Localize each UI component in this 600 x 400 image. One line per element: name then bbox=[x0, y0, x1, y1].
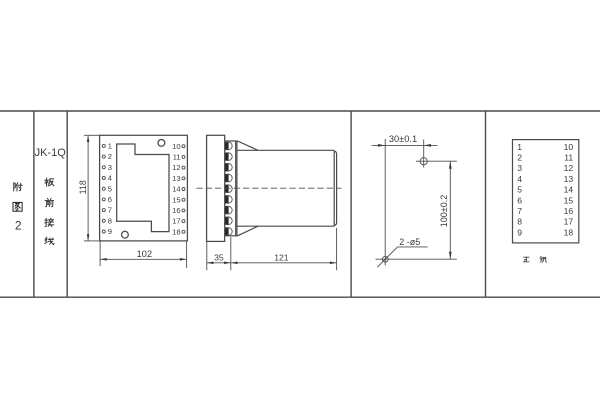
svg-text:1: 1 bbox=[108, 142, 112, 151]
svg-text:11: 11 bbox=[564, 153, 573, 163]
svg-text:1: 1 bbox=[517, 142, 522, 152]
svg-text:9: 9 bbox=[517, 227, 522, 237]
svg-text:7: 7 bbox=[517, 206, 522, 216]
svg-text:5: 5 bbox=[517, 185, 522, 195]
svg-text:6: 6 bbox=[517, 195, 522, 205]
svg-text:4: 4 bbox=[517, 174, 522, 184]
svg-text:10: 10 bbox=[172, 142, 180, 151]
svg-text:35: 35 bbox=[214, 252, 224, 262]
svg-text:17: 17 bbox=[564, 217, 574, 227]
svg-text:11: 11 bbox=[173, 153, 181, 162]
svg-text:13: 13 bbox=[564, 174, 574, 184]
svg-text:15: 15 bbox=[172, 195, 180, 204]
svg-text:100±0.2: 100±0.2 bbox=[439, 195, 449, 227]
svg-text:7: 7 bbox=[108, 206, 112, 215]
svg-text:18: 18 bbox=[564, 227, 574, 237]
svg-text:16: 16 bbox=[172, 206, 180, 215]
svg-text:12: 12 bbox=[564, 163, 574, 173]
svg-text:4: 4 bbox=[108, 174, 112, 183]
svg-text:30±0.1: 30±0.1 bbox=[389, 134, 417, 144]
svg-text:3: 3 bbox=[108, 163, 112, 172]
svg-text:3: 3 bbox=[517, 163, 522, 173]
svg-text:5: 5 bbox=[108, 184, 112, 193]
svg-text:2: 2 bbox=[108, 152, 112, 161]
svg-text:14: 14 bbox=[564, 185, 574, 195]
svg-text:12: 12 bbox=[172, 163, 180, 172]
svg-text:102: 102 bbox=[136, 248, 152, 259]
svg-text:2: 2 bbox=[15, 219, 22, 233]
svg-text:6: 6 bbox=[108, 195, 112, 204]
svg-text:17: 17 bbox=[172, 217, 180, 226]
svg-text:8: 8 bbox=[517, 217, 522, 227]
svg-text:JK-1Q: JK-1Q bbox=[35, 147, 67, 159]
svg-text:18: 18 bbox=[172, 227, 180, 236]
svg-text:9: 9 bbox=[108, 227, 112, 236]
svg-text:15: 15 bbox=[564, 195, 574, 205]
svg-text:10: 10 bbox=[564, 142, 574, 152]
svg-text:13: 13 bbox=[172, 174, 180, 183]
svg-text:14: 14 bbox=[172, 185, 180, 194]
svg-text:8: 8 bbox=[108, 216, 112, 225]
svg-text:118: 118 bbox=[78, 180, 88, 194]
svg-text:16: 16 bbox=[564, 206, 574, 216]
svg-text:121: 121 bbox=[274, 252, 289, 262]
svg-text:2 -ø5: 2 -ø5 bbox=[399, 237, 420, 247]
svg-text:2: 2 bbox=[517, 153, 522, 163]
